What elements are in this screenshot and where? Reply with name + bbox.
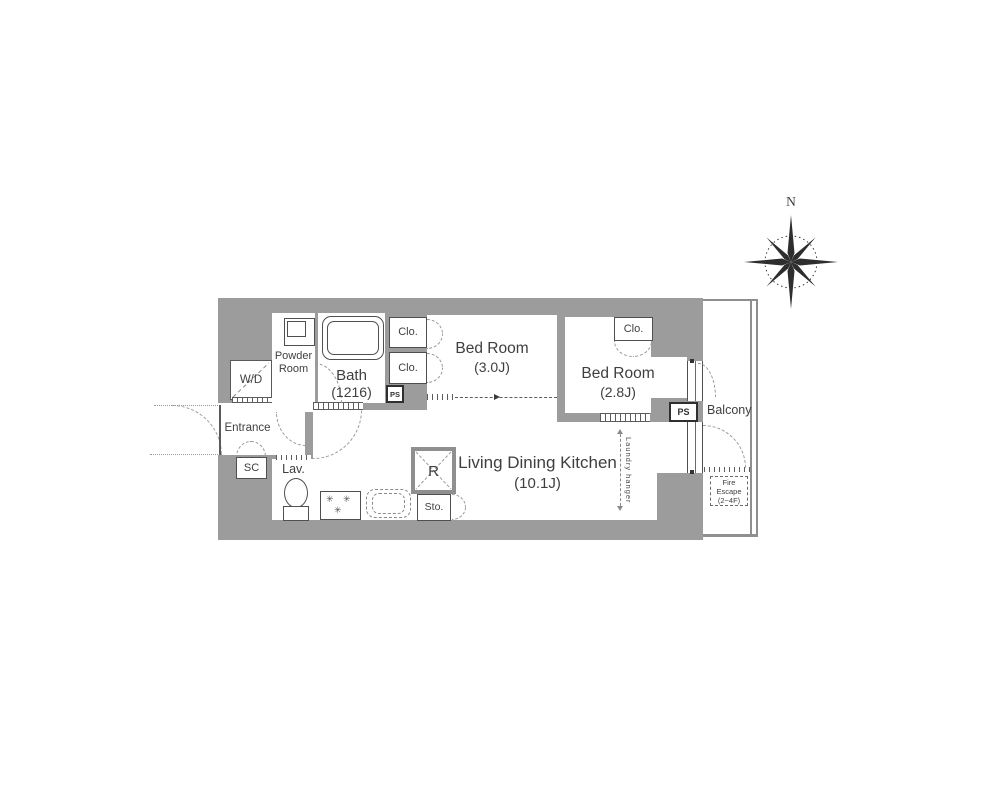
powder-room-label-line2: Room [270,363,317,376]
powder-sink-bowl [287,321,306,337]
pipe-space-1-label: PS [390,390,400,399]
bedroom2-label: Bed Room [557,365,679,383]
lavatory-door-band [276,455,311,460]
floor-plan-image: ✳ ✳ ✳ R Clo. Clo. PS Clo. PS SC Sto. Lau… [0,0,999,801]
ldk-area-under-bedroom1 [427,403,557,413]
bath-door-band [313,402,363,410]
fire-escape-line3: (2~4F) [711,496,747,505]
fire-escape-line2: Escape [711,487,747,496]
toilet-bowl [284,478,308,508]
powder-room-label: Powder Room [270,350,317,376]
powder-room-label-line1: Powder [270,350,317,363]
lavatory-label: Lav. [272,462,315,477]
kitchen-sink-inner [372,493,405,514]
bath-size-label: (1216) [318,384,385,401]
entrance-door-arc [172,405,222,455]
shoe-closet: SC [236,457,267,479]
bedroom1-sliding-door-line [455,397,557,398]
bathtub-inner [327,321,379,355]
burner-icon: ✳ [326,495,334,504]
fire-escape-box: Fire Escape (2~4F) [710,476,748,506]
entrance-alcove-line-top [154,405,220,406]
toilet-tank [283,506,309,521]
ldk-balcony-window [687,422,703,473]
fire-escape-line1: Fire [711,478,747,487]
bedroom1-size-label: (3.0J) [427,359,557,376]
bedroom2-size-label: (2.8J) [557,384,679,401]
bedroom2-window-band [600,413,650,422]
bath-label: Bath [318,367,385,385]
hall-wall-stub [305,412,313,455]
bedroom2-door-hinge [690,359,694,363]
shoe-closet-label: SC [244,462,259,475]
burner-icon: ✳ [343,495,351,504]
bedroom2-corner-wall [651,317,687,357]
pipe-space-2-label: PS [677,407,689,417]
balcony-rail-line [750,299,758,537]
compass-north-label: N [781,194,801,210]
bedroom2-closet-label: Clo. [624,323,644,336]
bedroom2-closet: Clo. [614,317,653,341]
wd-window-band [232,397,272,403]
closet-1-label: Clo. [398,326,418,339]
entrance-label: Entrance [220,422,275,436]
bedroom1-slider-band [427,394,455,400]
sliding-door-arrow-icon [494,394,500,400]
laundry-hanger-arrow-down-icon [617,506,623,511]
storage: Sto. [417,494,451,521]
bedroom1-label: Bed Room [427,340,557,358]
pipe-space-1: PS [386,385,404,403]
balcony-label: Balcony [704,403,757,418]
burner-icon: ✳ [334,506,342,515]
pipe-space-2: PS [669,402,698,422]
storage-label: Sto. [425,501,444,513]
compass-rose-icon [741,212,841,312]
entrance-alcove-line-bottom [150,454,222,455]
ldk-size-label: (10.1J) [390,475,685,493]
closet-2-label: Clo. [398,362,418,375]
closet-2: Clo. [389,352,427,384]
ldk-label: Living Dining Kitchen [390,453,685,473]
ldk-door-hinge [690,470,694,474]
laundry-hanger-arrow-up-icon [617,429,623,434]
closet-1: Clo. [389,317,427,348]
balcony-bottom-line [703,534,758,537]
washer-dryer-label: W/D [230,374,272,388]
